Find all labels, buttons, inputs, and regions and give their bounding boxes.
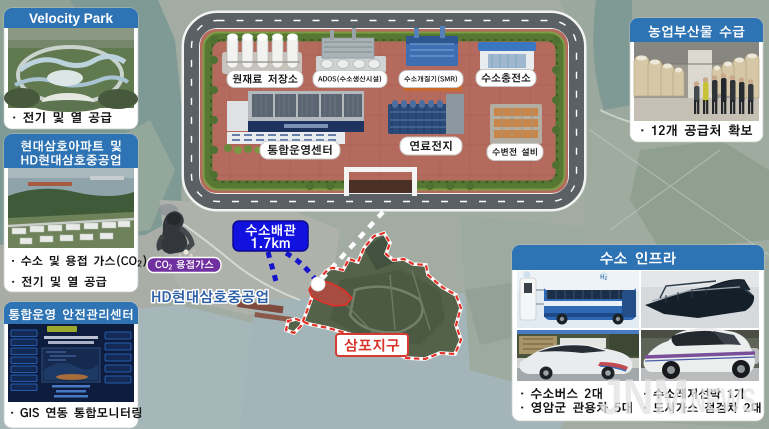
svg-text:JNM: JNM — [599, 369, 689, 425]
svg-text:Velocity Park: Velocity Park — [29, 11, 114, 26]
svg-text:NEWS: NEWS — [690, 382, 756, 420]
